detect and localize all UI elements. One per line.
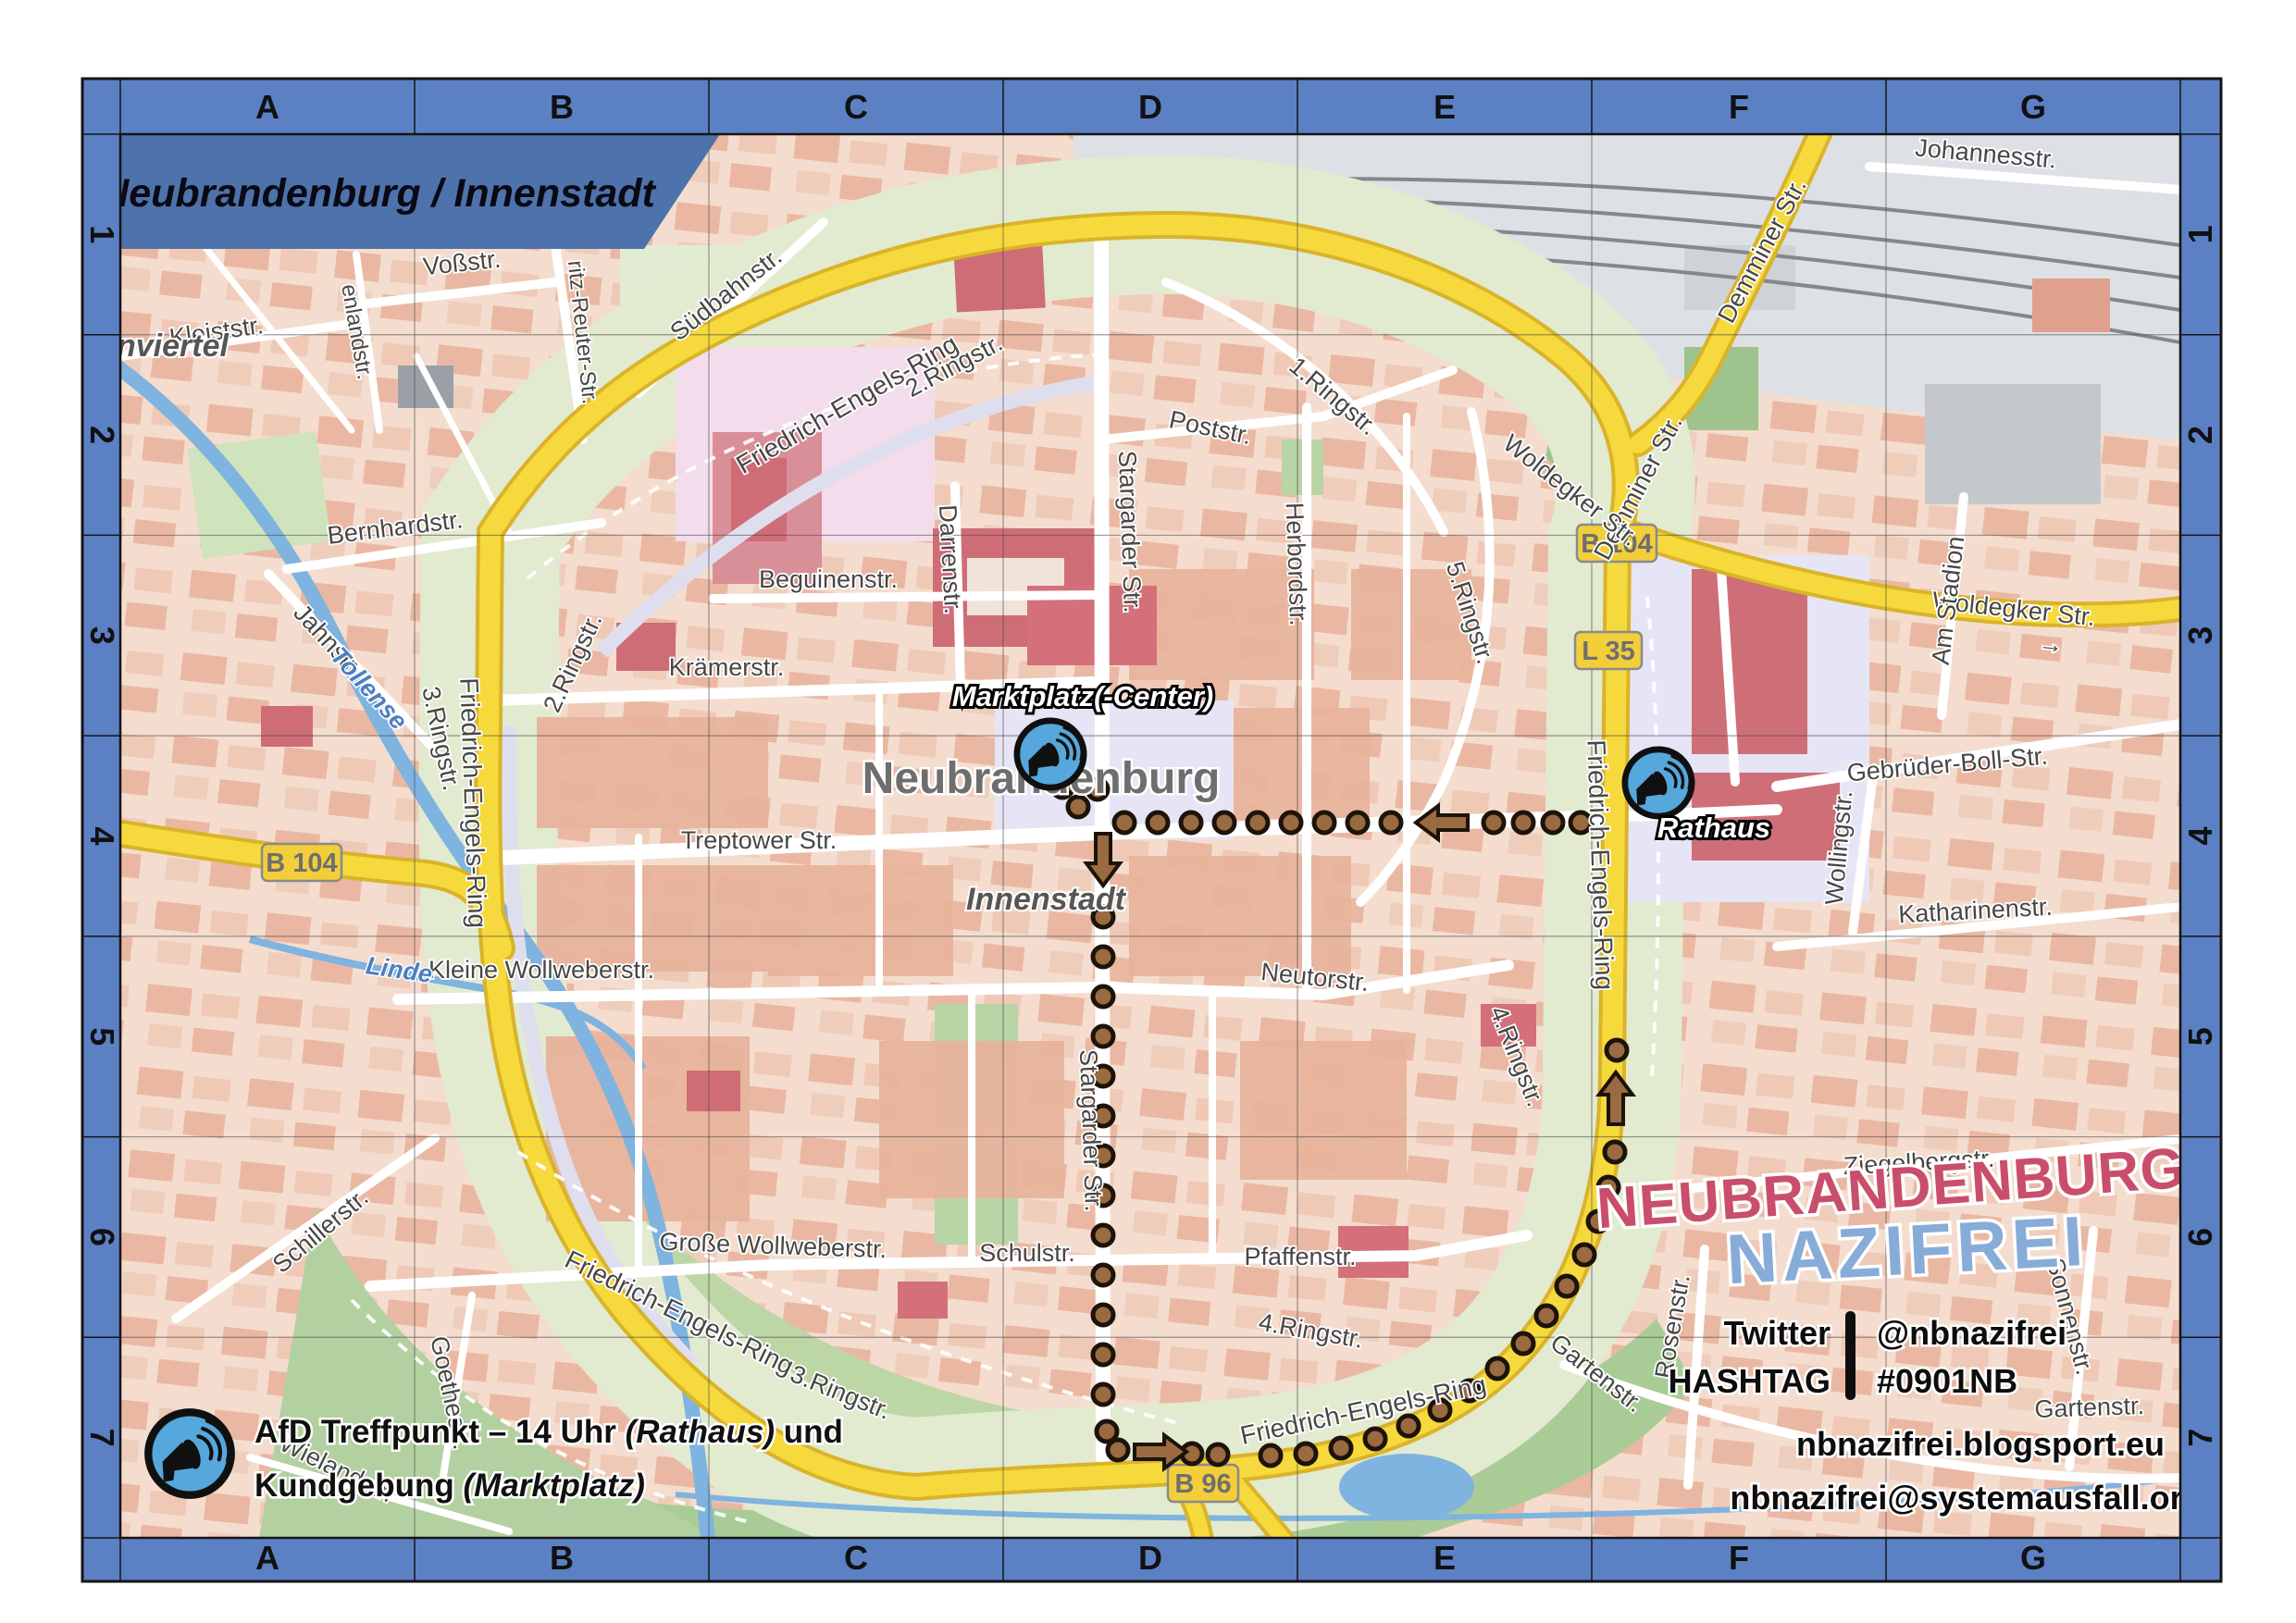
street-schulstr: Schulstr.	[979, 1239, 1075, 1267]
grid-row-6-right: 6	[2181, 1228, 2219, 1246]
route-dot	[1557, 1276, 1577, 1296]
street-pfaffenstr: Pfaffenstr.	[1244, 1243, 1356, 1270]
grid-col-E-top: E	[1433, 88, 1456, 126]
legend-line2: Kundgebung (Marktplatz)	[254, 1468, 645, 1504]
map-area: B 104 B 104 L 35 B 96 Voßstr. Kleiststr.…	[100, 130, 2203, 1541]
street-stargarder-top: Stargarder Str.	[1113, 450, 1147, 613]
grid-col-B-top: B	[550, 88, 574, 126]
map-title: Neubrandenburg / Innenstadt	[100, 171, 656, 216]
grid-row-4-left: 4	[83, 826, 121, 845]
grid-row-3-left: 3	[83, 626, 121, 645]
route-dot	[1513, 1333, 1533, 1354]
route-dot	[1093, 1344, 1113, 1365]
street-herbordstr: Herbordstr.	[1281, 502, 1313, 626]
badge-b96-label: B 96	[1174, 1469, 1231, 1499]
email-address: nbnazifrei@systemausfall.org	[1730, 1479, 2203, 1517]
route-dot	[1398, 1416, 1419, 1436]
street-kleine-wollweberstr: Kleine Wollweberstr.	[428, 956, 654, 984]
grid-row-5-left: 5	[83, 1027, 121, 1046]
street-darrenstr: Darrenstr.	[934, 504, 967, 615]
grid-row-2-right: 2	[2181, 426, 2219, 444]
street-stargarder-mid: Stargarder Str.	[1074, 1048, 1108, 1212]
grid-row-5-right: 5	[2181, 1027, 2219, 1046]
route-dot	[1296, 1443, 1316, 1464]
grid-row-7-right: 7	[2181, 1429, 2219, 1447]
route-dot	[1314, 812, 1334, 833]
route-dot	[1148, 812, 1168, 833]
district-innenstadt: Innenstadt	[966, 882, 1127, 917]
twitter-label: Twitter	[1724, 1314, 1831, 1352]
map-canvas: B 104 B 104 L 35 B 96 Voßstr. Kleiststr.…	[0, 0, 2296, 1623]
route-dot	[1247, 812, 1268, 833]
route-dot	[1093, 1305, 1113, 1325]
website-url: nbnazifrei.blogsport.eu	[1796, 1425, 2165, 1463]
street-kraemerstr: Krämerstr.	[669, 653, 785, 681]
route-dot	[1574, 1245, 1595, 1265]
grid-col-C-bottom: C	[844, 1539, 868, 1577]
route-dot	[1093, 1265, 1113, 1285]
badge-l35-label: L 35	[1582, 637, 1635, 666]
street-beguinenstr: Beguinenstr.	[759, 565, 898, 593]
route-dot	[1281, 812, 1301, 833]
grid-col-F-bottom: F	[1729, 1539, 1749, 1577]
route-dot	[1214, 812, 1235, 833]
route-dot	[1605, 1142, 1625, 1162]
poi-marktplatz-label: Marktplatz(-Center)	[952, 680, 1213, 712]
grid-row-6-left: 6	[83, 1228, 121, 1246]
contact-divider	[1845, 1311, 1855, 1400]
route-dot	[1543, 812, 1563, 833]
route-dot	[1208, 1444, 1228, 1465]
title-banner: Neubrandenburg / Innenstadt	[100, 134, 720, 249]
route-dot	[1483, 812, 1504, 833]
grid-col-E-bottom: E	[1433, 1539, 1456, 1577]
grid-col-A-bottom: A	[255, 1539, 279, 1577]
route-dot	[1536, 1306, 1557, 1326]
megaphone-icon-marktplatz	[1017, 721, 1086, 787]
grid-row-1-right: 1	[2181, 225, 2219, 243]
street-treptower: Treptower Str.	[681, 826, 838, 854]
route-dot	[1093, 947, 1113, 967]
grid-row-2-left: 2	[83, 426, 121, 444]
grid-col-B-bottom: B	[550, 1539, 574, 1577]
grid-row-3-right: 3	[2181, 626, 2219, 645]
grid-row-4-right: 4	[2181, 826, 2219, 845]
route-dot	[1607, 1040, 1627, 1060]
badge-b104-west: B 104	[262, 844, 341, 881]
protest-map-poster: B 104 B 104 L 35 B 96 Voßstr. Kleiststr.…	[0, 0, 2296, 1623]
route-dot	[1114, 812, 1135, 833]
route-dot	[1108, 1440, 1128, 1460]
route-dot	[1093, 1384, 1113, 1405]
route-dot	[1381, 812, 1401, 833]
grid-row-1-left: 1	[83, 225, 121, 243]
hashtag-value: #0901NB	[1877, 1362, 2017, 1400]
megaphone-icon-rathaus	[1625, 750, 1694, 816]
badge-b104-west-label: B 104	[266, 849, 337, 878]
grid-col-A-top: A	[255, 88, 279, 126]
megaphone-icon-legend	[148, 1412, 233, 1494]
grid-col-F-top: F	[1729, 88, 1749, 126]
legend-line1: AfD Treffpunkt – 14 Uhr (Rathaus) und	[254, 1414, 843, 1450]
badge-b96: B 96	[1168, 1465, 1238, 1502]
grid-col-D-bottom: D	[1138, 1539, 1162, 1577]
route-dot	[1093, 1225, 1113, 1245]
poi-rathaus-label: Rathaus	[1657, 811, 1770, 844]
grid-col-C-top: C	[844, 88, 868, 126]
grid-col-D-top: D	[1138, 88, 1162, 126]
grid-col-G-bottom: G	[2020, 1539, 2046, 1577]
route-dot	[1093, 1026, 1113, 1047]
route-dot	[1260, 1445, 1281, 1466]
grid-col-G-top: G	[2020, 88, 2046, 126]
route-dot	[1365, 1429, 1385, 1449]
direction-arrow-east: →	[2037, 629, 2065, 660]
badge-l35: L 35	[1575, 632, 1642, 669]
grid-row-7-left: 7	[83, 1429, 121, 1447]
route-dot	[1487, 1358, 1508, 1379]
street-gartenstr-east: Gartenstr.	[2034, 1392, 2145, 1423]
route-dot	[1331, 1438, 1351, 1458]
route-dot	[1513, 812, 1533, 833]
hashtag-label: HASHTAG	[1669, 1362, 1831, 1400]
district-partial: nviertel	[117, 328, 230, 364]
twitter-handle: @nbnazifrei	[1877, 1314, 2066, 1352]
route-dot	[1093, 986, 1113, 1007]
route-dot	[1347, 812, 1368, 833]
route-dot	[1181, 812, 1201, 833]
